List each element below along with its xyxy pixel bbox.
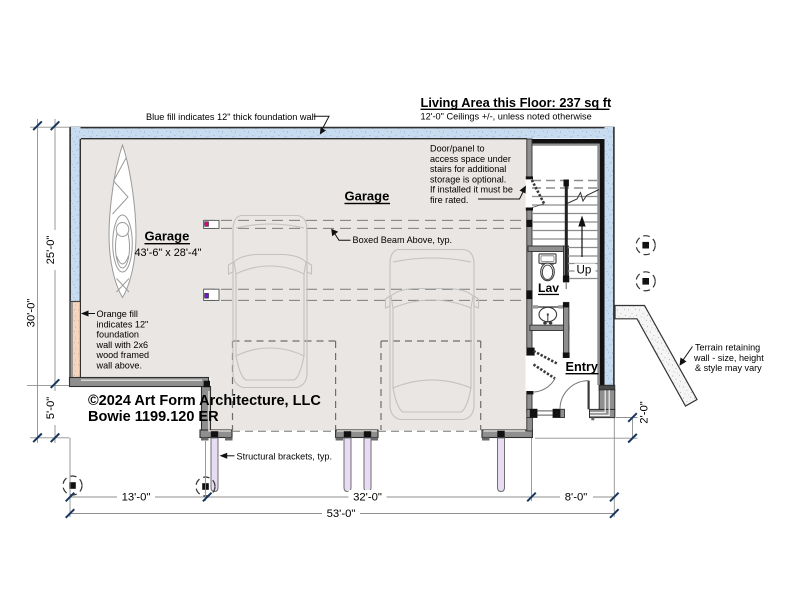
svg-text:Garage: Garage <box>145 229 190 244</box>
svg-text:Orange fill: Orange fill <box>97 309 138 319</box>
svg-text:wall with 2x6: wall with 2x6 <box>96 340 149 350</box>
svg-text:foundation: foundation <box>97 330 139 340</box>
svg-text:Entry: Entry <box>566 360 598 374</box>
svg-text:access space under: access space under <box>430 154 511 164</box>
svg-text:43'-6" x 28'-4": 43'-6" x 28'-4" <box>135 247 202 259</box>
svg-text:12'-0" Ceilings +/-, unless no: 12'-0" Ceilings +/-, unless noted otherw… <box>421 111 592 121</box>
svg-text:Terrain retaining: Terrain retaining <box>695 343 760 353</box>
svg-text:fire rated.: fire rated. <box>430 195 468 205</box>
svg-text:If installed it must be: If installed it must be <box>430 185 513 195</box>
svg-text:stairs for additional: stairs for additional <box>430 164 506 174</box>
svg-text:30'-0": 30'-0" <box>26 299 38 328</box>
svg-text:Lav: Lav <box>538 281 559 295</box>
svg-text:wall above.: wall above. <box>96 361 143 371</box>
svg-text:8'-0": 8'-0" <box>565 492 588 504</box>
svg-text:Structural brackets, typ.: Structural brackets, typ. <box>237 452 333 462</box>
svg-text:wall - size, height: wall - size, height <box>693 353 764 363</box>
svg-text:Living Area this Floor: 237 sq: Living Area this Floor: 237 sq ft <box>421 95 613 110</box>
svg-text:Garage: Garage <box>345 189 390 204</box>
svg-text:storage is optional.: storage is optional. <box>430 174 506 184</box>
svg-text:13'-0": 13'-0" <box>122 492 151 504</box>
svg-text:25'-0": 25'-0" <box>45 236 57 265</box>
svg-text:53'-0": 53'-0" <box>327 508 356 520</box>
svg-text:©2024 Art Form Architecture, L: ©2024 Art Form Architecture, LLC <box>88 393 321 409</box>
svg-text:32'-0": 32'-0" <box>353 492 382 504</box>
svg-text:wood framed: wood framed <box>96 350 150 360</box>
svg-text:indicates 12": indicates 12" <box>97 319 149 329</box>
svg-text:5'-0": 5'-0" <box>45 397 57 420</box>
svg-text:Bowie 1199.120 ER: Bowie 1199.120 ER <box>88 409 219 425</box>
svg-text:2'-0": 2'-0" <box>639 401 651 424</box>
svg-text:Blue fill indicates 12" thick: Blue fill indicates 12" thick foundation… <box>146 112 316 122</box>
svg-text:Door/panel to: Door/panel to <box>430 144 485 154</box>
svg-text:& style may vary: & style may vary <box>695 363 762 373</box>
svg-text:Boxed Beam Above, typ.: Boxed Beam Above, typ. <box>353 235 453 245</box>
svg-text:Up: Up <box>577 264 592 277</box>
